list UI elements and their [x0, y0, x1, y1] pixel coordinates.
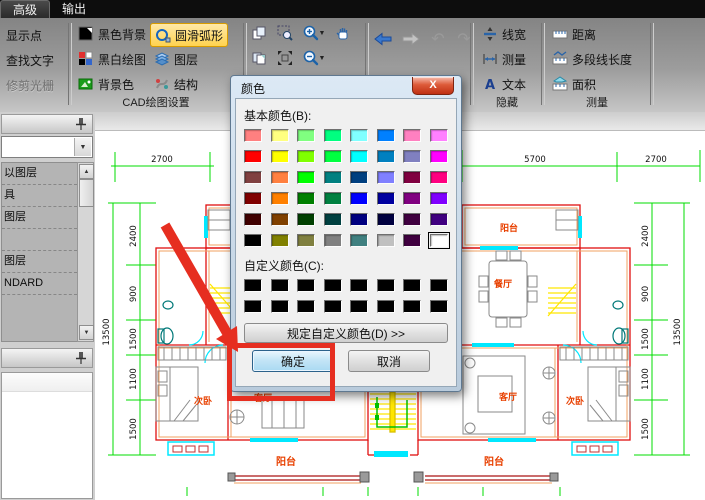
- measure-toggle-button[interactable]: 测量: [478, 48, 530, 70]
- zoom-extents-icon: [277, 50, 293, 66]
- dialog-content: 基本颜色(B): 自定义颜色(C): 规定自定义颜色(D) >> 确定 取消: [235, 98, 457, 387]
- color-swatch[interactable]: [244, 171, 262, 184]
- svg-text:2400: 2400: [129, 225, 139, 247]
- color-swatch[interactable]: [403, 192, 421, 205]
- zoom-out-dropdown[interactable]: ▼: [317, 47, 327, 69]
- cancel-button[interactable]: 取消: [348, 350, 430, 372]
- linewidth-button[interactable]: 线宽: [478, 23, 530, 45]
- show-points-button[interactable]: 显示点: [2, 24, 46, 46]
- dialog-button-row: 确定 取消: [244, 350, 448, 372]
- color-swatch[interactable]: [297, 279, 315, 292]
- color-swatch[interactable]: [377, 192, 395, 205]
- structure-button[interactable]: 结构: [150, 73, 202, 95]
- list-item[interactable]: 具: [2, 185, 77, 207]
- color-swatch[interactable]: [403, 171, 421, 184]
- color-swatch[interactable]: [324, 300, 342, 313]
- color-swatch[interactable]: [271, 129, 289, 142]
- color-swatch[interactable]: [430, 213, 448, 226]
- properties-sidebar: ▼ 以图层具图层图层NDARD ▲ ▼: [0, 112, 96, 500]
- zoom-window-icon: [277, 25, 293, 41]
- svg-text:1100: 1100: [641, 368, 651, 390]
- distance-ruler-icon: [552, 26, 568, 42]
- measure-toggle-label: 测量: [502, 51, 526, 68]
- paste-view-tool[interactable]: [248, 47, 270, 69]
- svg-text:1500: 1500: [129, 418, 139, 440]
- color-swatch[interactable]: [350, 129, 368, 142]
- color-swatch[interactable]: [403, 150, 421, 163]
- svg-text:2700: 2700: [645, 155, 667, 165]
- close-icon[interactable]: X: [412, 77, 454, 95]
- copy-view-icon: [251, 25, 267, 41]
- color-swatch[interactable]: [297, 150, 315, 163]
- measure-toggle-icon: [482, 51, 498, 67]
- color-swatch[interactable]: [403, 234, 421, 247]
- polyline-length-button[interactable]: 多段线长度: [548, 48, 636, 70]
- back-button[interactable]: [372, 28, 394, 50]
- background-color-button[interactable]: 背景色: [74, 73, 138, 95]
- pin-icon[interactable]: [74, 351, 88, 365]
- list-item[interactable]: [2, 229, 77, 251]
- color-swatch[interactable]: [350, 300, 368, 313]
- color-swatch[interactable]: [430, 279, 448, 292]
- lower-panel: [1, 372, 93, 499]
- color-swatch[interactable]: [324, 171, 342, 184]
- color-swatch[interactable]: [297, 234, 315, 247]
- svg-text:A: A: [485, 78, 495, 92]
- color-swatch[interactable]: [350, 150, 368, 163]
- color-swatch[interactable]: [377, 171, 395, 184]
- svg-text:1500: 1500: [129, 328, 139, 350]
- area-icon: [552, 76, 568, 92]
- custom-colors-grid: [244, 279, 448, 313]
- color-swatch[interactable]: [430, 234, 448, 247]
- balcony-rails: [234, 476, 552, 480]
- hide-group-label: 隐藏: [476, 94, 538, 110]
- background-color-icon: [78, 76, 94, 92]
- color-swatch[interactable]: [244, 234, 262, 247]
- sidebar-scrollbar[interactable]: ▲ ▼: [77, 162, 94, 342]
- svg-text:餐厅: 餐厅: [493, 278, 512, 290]
- color-swatch[interactable]: [350, 213, 368, 226]
- combobox-value: [2, 141, 5, 153]
- color-swatch[interactable]: [377, 150, 395, 163]
- menu-tab-output[interactable]: 输出: [50, 0, 98, 18]
- measure-group-label: 测量: [546, 94, 648, 110]
- back-arrow-icon: [373, 31, 393, 47]
- menu-tab-advanced[interactable]: 高级: [0, 0, 50, 18]
- color-swatch[interactable]: [324, 234, 342, 247]
- stairwell-window: [374, 451, 408, 457]
- background-color-label: 背景色: [98, 76, 134, 93]
- panel-header-top: [1, 114, 93, 134]
- color-swatch[interactable]: [244, 300, 262, 313]
- ribbon-separator: [68, 23, 72, 105]
- sidebar-list[interactable]: 以图层具图层图层NDARD: [1, 162, 77, 342]
- color-swatch[interactable]: [350, 234, 368, 247]
- svg-text:1100: 1100: [129, 368, 139, 390]
- structure-icon: [154, 76, 170, 92]
- svg-text:阳台: 阳台: [276, 455, 296, 468]
- color-swatch[interactable]: [271, 279, 289, 292]
- copy-view-tool[interactable]: [248, 22, 270, 44]
- color-swatch[interactable]: [430, 171, 448, 184]
- text-button[interactable]: A 文本: [478, 73, 530, 95]
- bw-drawing-button[interactable]: 黑白绘图: [74, 48, 150, 70]
- area-button[interactable]: 面积: [548, 73, 600, 95]
- color-swatch[interactable]: [324, 150, 342, 163]
- layers-label: 图层: [174, 51, 198, 68]
- color-swatch[interactable]: [297, 300, 315, 313]
- svg-text:次卧: 次卧: [566, 395, 584, 407]
- layers-button[interactable]: 图层: [150, 48, 202, 70]
- color-swatch[interactable]: [271, 234, 289, 247]
- svg-text:2700: 2700: [151, 155, 173, 165]
- color-swatch[interactable]: [324, 279, 342, 292]
- color-swatch[interactable]: [271, 213, 289, 226]
- color-swatch[interactable]: [377, 234, 395, 247]
- color-swatch[interactable]: [271, 171, 289, 184]
- pin-icon[interactable]: [74, 117, 88, 131]
- polyline-length-icon: [552, 51, 568, 67]
- color-swatch[interactable]: [271, 192, 289, 205]
- color-swatch[interactable]: [430, 300, 448, 313]
- layers-icon: [154, 51, 170, 67]
- application-window: 高级 输出 显示点 查找文字 修剪光栅 黑色背景 黑白绘图 背景色 圆滑弧形 图…: [0, 0, 705, 500]
- svg-text:客厅: 客厅: [253, 392, 272, 404]
- distance-label: 距离: [572, 26, 596, 43]
- smooth-arc-icon: [155, 27, 171, 43]
- color-swatch[interactable]: [377, 129, 395, 142]
- color-swatch[interactable]: [297, 129, 315, 142]
- color-swatch[interactable]: [350, 279, 368, 292]
- pan-hand-icon: [335, 25, 351, 41]
- svg-text:次卧: 次卧: [194, 395, 212, 407]
- color-swatch[interactable]: [403, 129, 421, 142]
- svg-text:客厅: 客厅: [498, 391, 517, 403]
- color-swatch[interactable]: [350, 171, 368, 184]
- color-swatch[interactable]: [430, 192, 448, 205]
- define-custom-colors-button[interactable]: 规定自定义颜色(D) >>: [244, 323, 448, 343]
- bw-drawing-icon: [78, 51, 94, 67]
- color-swatch[interactable]: [324, 129, 342, 142]
- ok-button[interactable]: 确定: [252, 350, 334, 372]
- scrollbar-thumb[interactable]: [79, 179, 94, 207]
- color-dialog: 颜色 X 基本颜色(B): 自定义颜色(C): 规定自定义颜色(D) >> 确定…: [230, 75, 462, 392]
- color-swatch[interactable]: [377, 213, 395, 226]
- basic-colors-label: 基本颜色(B):: [244, 107, 448, 124]
- svg-text:阳台: 阳台: [500, 222, 518, 234]
- find-text-label: 查找文字: [6, 52, 54, 69]
- trim-raster-label: 修剪光栅: [6, 77, 54, 94]
- color-swatch[interactable]: [297, 192, 315, 205]
- menu-bar: 高级 输出: [0, 0, 705, 18]
- color-swatch[interactable]: [324, 192, 342, 205]
- color-swatch[interactable]: [403, 300, 421, 313]
- list-item[interactable]: 图层: [2, 251, 77, 273]
- svg-text:阳台: 阳台: [484, 455, 504, 468]
- combobox-dropdown-icon[interactable]: ▼: [74, 138, 91, 156]
- smooth-arc-label: 圆滑弧形: [175, 27, 223, 44]
- basic-colors-grid: [244, 129, 448, 247]
- forward-arrow-icon: [401, 31, 421, 47]
- text-icon: A: [482, 76, 498, 92]
- cad-settings-group-label: CAD绘图设置: [72, 94, 240, 110]
- ribbon-separator: [650, 23, 654, 105]
- linewidth-icon: [482, 26, 498, 42]
- list-item[interactable]: 以图层: [2, 163, 77, 185]
- structure-label: 结构: [174, 76, 198, 93]
- black-background-label: 黑色背景: [98, 26, 146, 43]
- scroll-up-icon[interactable]: ▲: [79, 164, 94, 179]
- linewidth-label: 线宽: [502, 26, 526, 43]
- color-swatch[interactable]: [403, 213, 421, 226]
- color-swatch[interactable]: [324, 213, 342, 226]
- text-label: 文本: [502, 76, 526, 93]
- polyline-length-label: 多段线长度: [572, 51, 632, 68]
- list-item[interactable]: NDARD: [2, 273, 77, 295]
- list-item[interactable]: 图层: [2, 207, 77, 229]
- ribbon-separator: [541, 23, 545, 105]
- color-swatch[interactable]: [350, 192, 368, 205]
- color-swatch[interactable]: [430, 150, 448, 163]
- dialog-title: 颜色: [241, 80, 265, 97]
- distance-button[interactable]: 距离: [548, 23, 600, 45]
- color-swatch[interactable]: [377, 300, 395, 313]
- bw-drawing-label: 黑白绘图: [98, 51, 146, 68]
- svg-text:13500: 13500: [673, 318, 683, 345]
- show-points-label: 显示点: [6, 27, 42, 44]
- svg-text:5700: 5700: [524, 155, 546, 165]
- color-swatch[interactable]: [244, 129, 262, 142]
- color-swatch[interactable]: [297, 213, 315, 226]
- zoom-window-tool[interactable]: [274, 22, 296, 44]
- pan-tool[interactable]: [332, 22, 354, 44]
- color-swatch[interactable]: [271, 300, 289, 313]
- find-text-button[interactable]: 查找文字: [2, 49, 58, 71]
- scroll-down-icon[interactable]: ▼: [79, 325, 94, 340]
- ribbon-separator: [470, 23, 474, 105]
- forward-button: [400, 28, 422, 50]
- color-swatch[interactable]: [271, 150, 289, 163]
- paste-view-icon: [251, 50, 267, 66]
- svg-text:1500: 1500: [641, 418, 651, 440]
- color-swatch[interactable]: [244, 279, 262, 292]
- zoom-in-dropdown[interactable]: ▼: [317, 22, 327, 44]
- color-swatch[interactable]: [244, 192, 262, 205]
- svg-text:1500: 1500: [641, 328, 651, 350]
- svg-text:2400: 2400: [641, 225, 651, 247]
- color-swatch[interactable]: [244, 150, 262, 163]
- lower-panel-row: [2, 373, 92, 392]
- svg-text:900: 900: [641, 286, 651, 302]
- custom-colors-label: 自定义颜色(C):: [244, 257, 448, 274]
- layer-combobox[interactable]: ▼: [1, 136, 93, 158]
- smooth-arc-button[interactable]: 圆滑弧形: [150, 23, 228, 47]
- color-swatch[interactable]: [377, 279, 395, 292]
- black-background-icon: [78, 26, 94, 42]
- panel-header-bottom: [1, 348, 93, 368]
- svg-text:13500: 13500: [102, 318, 112, 345]
- color-swatch[interactable]: [244, 213, 262, 226]
- color-swatch[interactable]: [403, 279, 421, 292]
- trim-raster-button: 修剪光栅: [2, 74, 58, 96]
- zoom-extents-tool[interactable]: [274, 47, 296, 69]
- color-swatch[interactable]: [297, 171, 315, 184]
- undo-button: ↶: [426, 28, 450, 50]
- black-background-button[interactable]: 黑色背景: [74, 23, 150, 45]
- svg-text:900: 900: [129, 286, 139, 302]
- area-label: 面积: [572, 76, 596, 93]
- color-swatch[interactable]: [430, 129, 448, 142]
